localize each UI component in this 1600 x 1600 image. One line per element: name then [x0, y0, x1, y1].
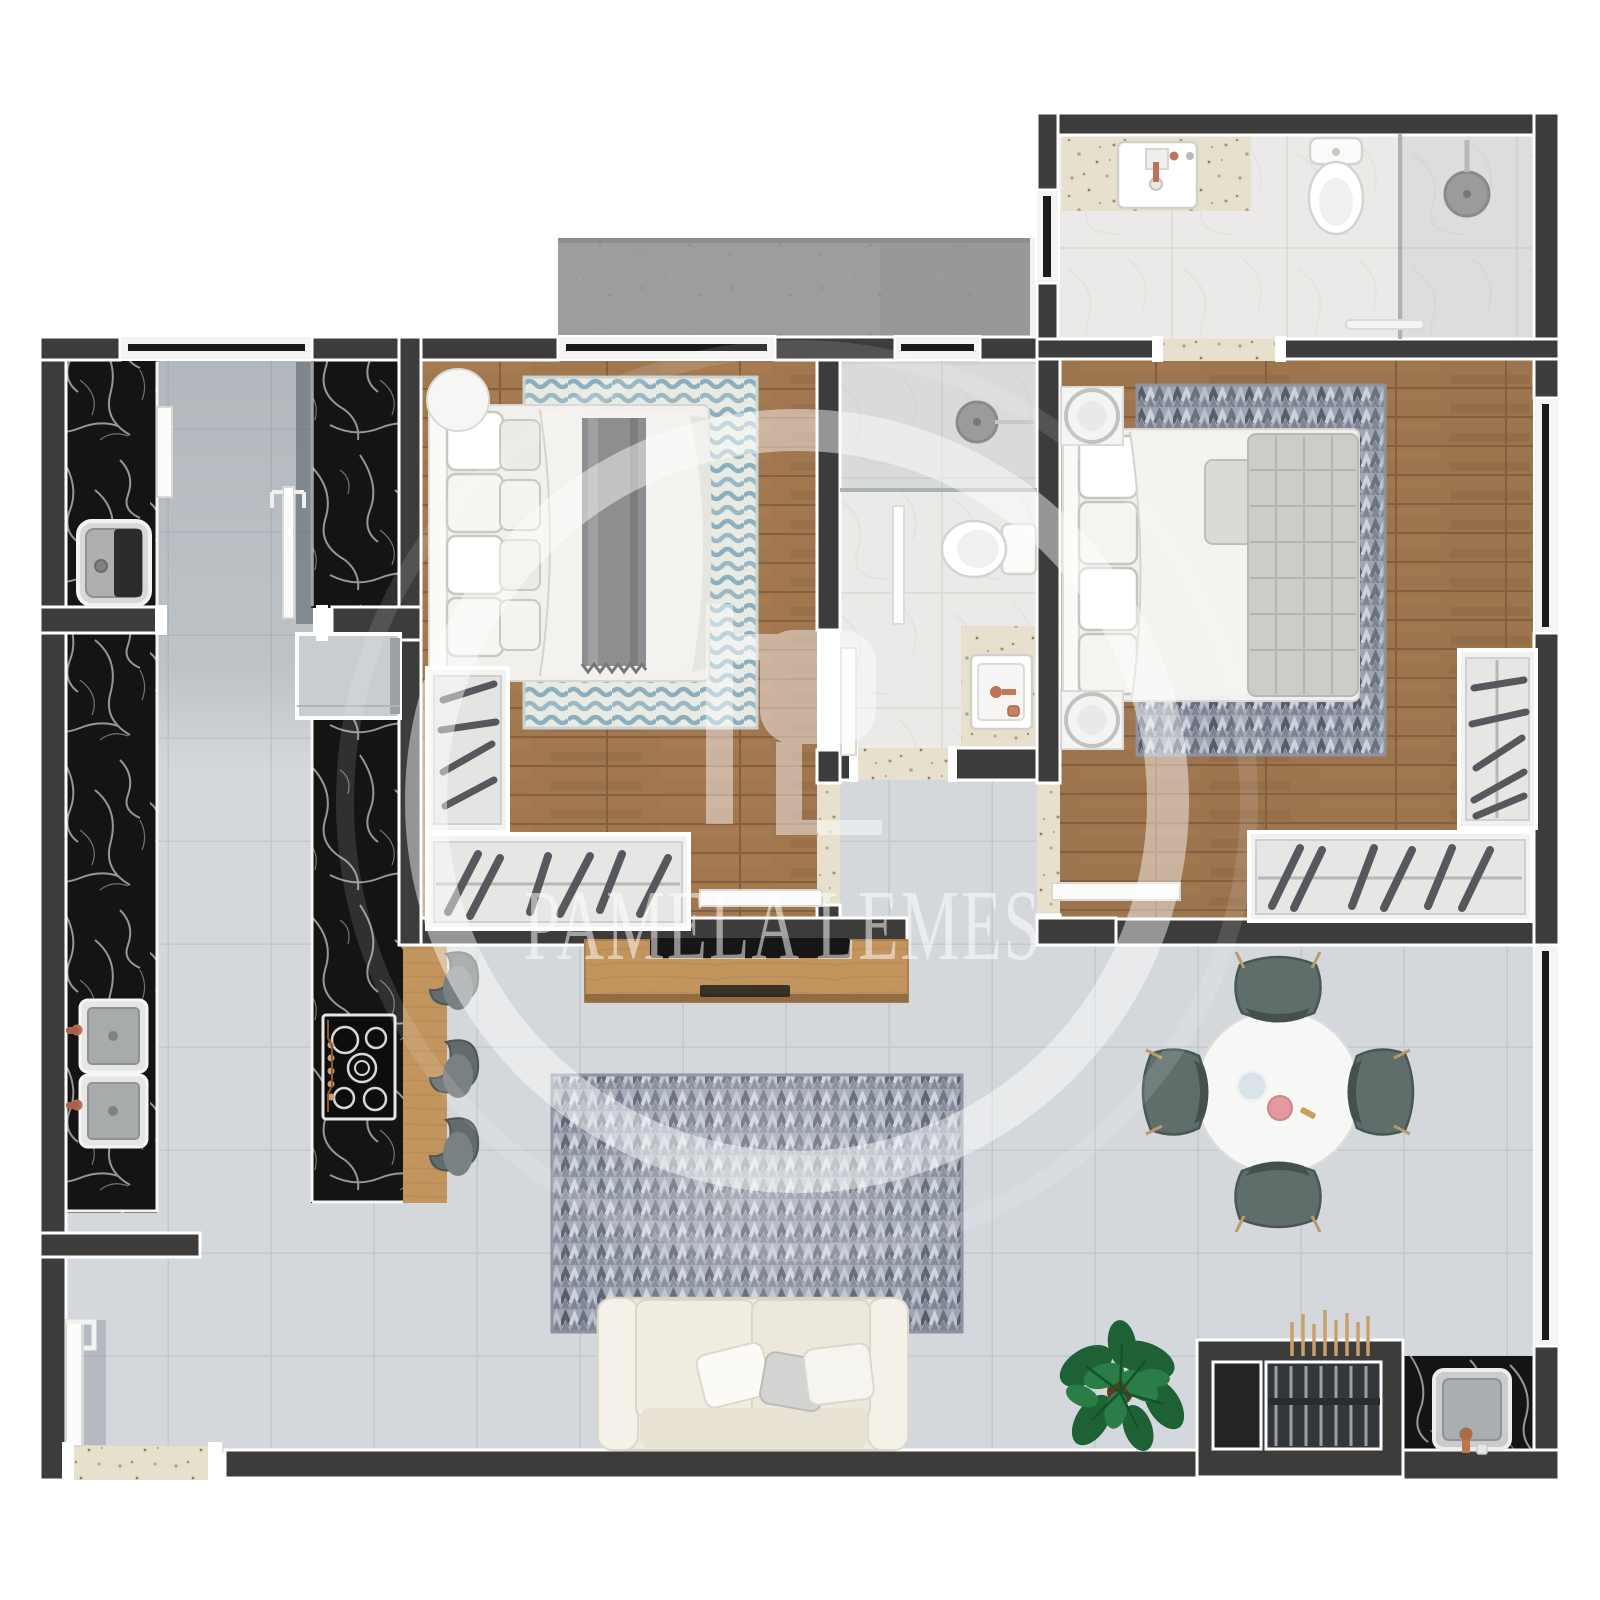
svg-text:PAMELA LEMES: PAMELA LEMES	[524, 870, 1042, 981]
